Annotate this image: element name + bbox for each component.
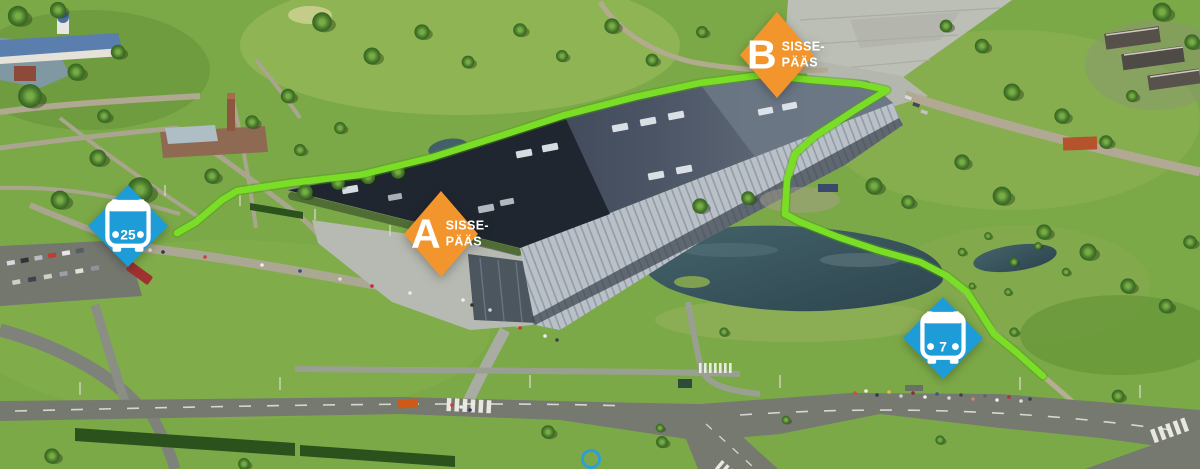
bus-icon: 7 [919, 311, 967, 365]
bus-25-number: 25 [120, 227, 136, 242]
bus-7-number: 7 [939, 339, 947, 354]
aerial-map: A SISSE- PÄÄS B SISSE- PÄÄS 25 [0, 0, 1200, 469]
entrance-b-label-line1: SISSE- [782, 40, 825, 55]
bus-icon: 25 [104, 199, 152, 253]
entrance-b-label-line2: PÄÄS [782, 55, 825, 70]
entrance-b-letter: B [747, 35, 777, 76]
entrance-a-label-line1: SISSE- [446, 219, 489, 234]
orange-car [398, 398, 419, 408]
aerial-photo-background [0, 0, 1200, 469]
entrance-a-label-line2: PÄÄS [446, 234, 489, 249]
entrance-a-letter: A [411, 214, 441, 255]
